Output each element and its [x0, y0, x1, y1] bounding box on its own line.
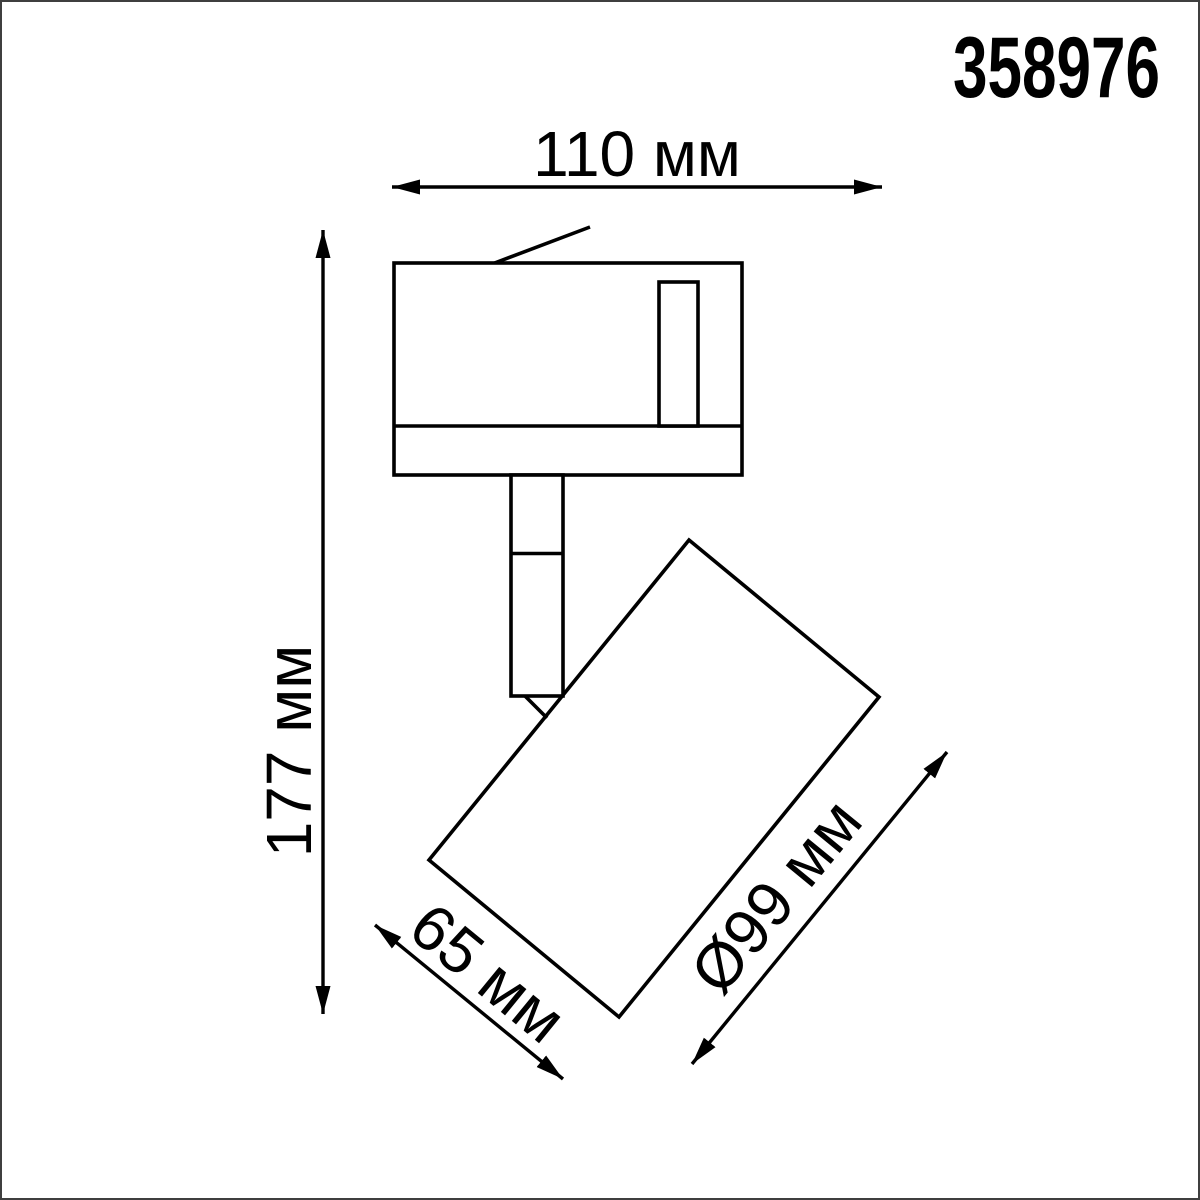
dimension-drawing: 358976 110 мм 177 мм — [2, 2, 1198, 1198]
height-dimension-label: 177 мм — [253, 645, 325, 858]
dimension-overall-width: 110 мм — [392, 118, 882, 190]
pivot-detail-line — [525, 696, 547, 718]
stem — [511, 475, 563, 696]
dimension-overall-height: 177 мм — [253, 230, 325, 1014]
adapter-slot — [659, 282, 698, 426]
product-code: 358976 — [953, 20, 1160, 116]
diagram-frame: 358976 110 мм 177 мм — [0, 0, 1200, 1200]
release-lever-line — [492, 227, 590, 264]
width-dimension-label: 110 мм — [533, 118, 741, 190]
